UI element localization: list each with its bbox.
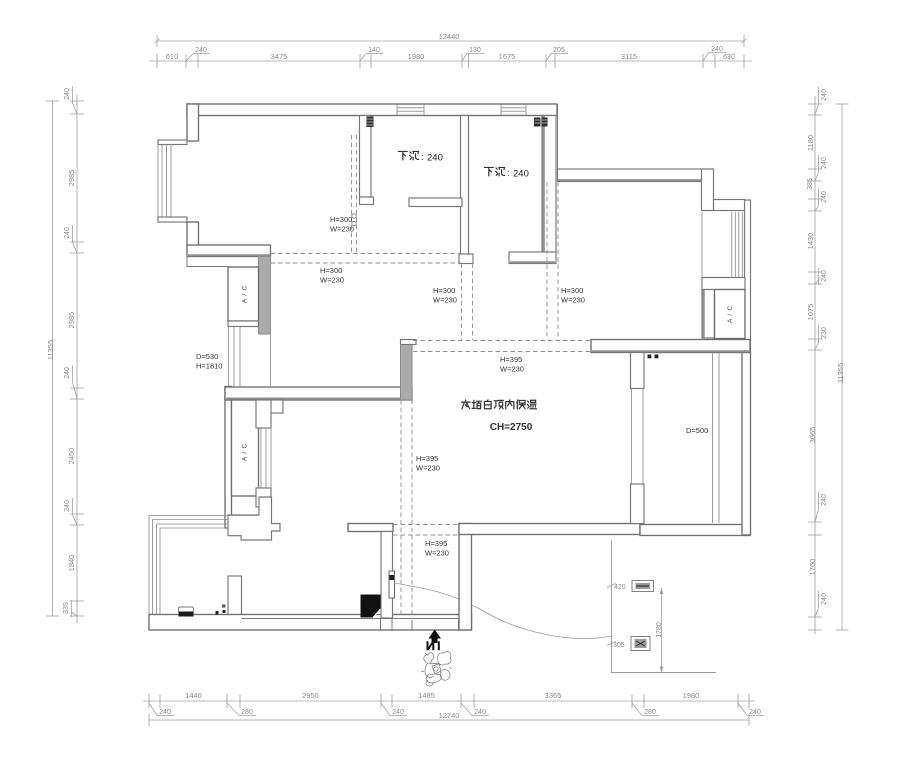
svg-text:240: 240 xyxy=(821,270,828,282)
svg-text:H=1810: H=1810 xyxy=(196,362,222,371)
svg-text::: : xyxy=(507,168,510,178)
svg-text:240: 240 xyxy=(64,500,71,512)
svg-text:11355: 11355 xyxy=(46,340,55,360)
svg-text:240: 240 xyxy=(427,153,443,164)
svg-text:240: 240 xyxy=(195,47,207,54)
svg-text:H=395: H=395 xyxy=(425,539,447,548)
svg-text:420: 420 xyxy=(614,584,626,591)
svg-text:240: 240 xyxy=(64,88,71,100)
svg-text:2985: 2985 xyxy=(67,170,76,187)
svg-text:1760: 1760 xyxy=(808,559,817,576)
svg-text:H=300: H=300 xyxy=(320,266,342,275)
svg-text:3115: 3115 xyxy=(621,52,637,61)
svg-text:A / C: A / C xyxy=(242,443,249,461)
svg-text:D=500: D=500 xyxy=(686,426,708,435)
svg-text:3665: 3665 xyxy=(808,427,817,444)
svg-text:1430: 1430 xyxy=(806,233,815,250)
svg-text:W=230: W=230 xyxy=(416,464,440,473)
svg-text:240: 240 xyxy=(821,157,828,169)
svg-text:A / C: A / C xyxy=(242,285,249,303)
svg-text:1980: 1980 xyxy=(408,52,425,61)
svg-text:240: 240 xyxy=(821,494,828,506)
svg-text:240: 240 xyxy=(392,709,404,716)
svg-text:3475: 3475 xyxy=(271,52,288,61)
svg-text:W=230: W=230 xyxy=(330,225,354,234)
svg-text:205: 205 xyxy=(553,47,565,54)
svg-text:W=230: W=230 xyxy=(320,276,344,285)
svg-text:W=230: W=230 xyxy=(561,296,585,305)
svg-text:A / C: A / C xyxy=(727,305,734,323)
svg-text:W=230: W=230 xyxy=(425,549,449,558)
svg-text:230: 230 xyxy=(821,327,828,339)
svg-text:2985: 2985 xyxy=(67,312,76,329)
svg-text:305: 305 xyxy=(613,642,625,649)
svg-text:240: 240 xyxy=(821,191,828,203)
svg-text:H=395: H=395 xyxy=(500,355,522,364)
svg-text:2950: 2950 xyxy=(302,691,319,700)
svg-text:1840: 1840 xyxy=(67,555,76,572)
svg-text:630: 630 xyxy=(723,54,735,61)
svg-text:H=300: H=300 xyxy=(433,286,455,295)
svg-text:1180: 1180 xyxy=(806,135,815,151)
svg-text:D=530: D=530 xyxy=(196,352,218,361)
svg-text:W=230: W=230 xyxy=(500,365,524,374)
svg-text:280: 280 xyxy=(644,709,656,716)
svg-text:12740: 12740 xyxy=(439,711,460,720)
svg-text:240: 240 xyxy=(64,367,71,379)
svg-text:H=300: H=300 xyxy=(561,286,583,295)
svg-text:11355: 11355 xyxy=(836,363,845,383)
svg-text:1980: 1980 xyxy=(683,691,700,700)
svg-text:1075: 1075 xyxy=(806,304,815,321)
svg-text:610: 610 xyxy=(166,52,179,61)
svg-text:280: 280 xyxy=(241,709,253,716)
svg-text:140: 140 xyxy=(368,47,380,54)
svg-text:CH=2750: CH=2750 xyxy=(490,422,533,433)
svg-text:1780: 1780 xyxy=(656,622,663,638)
svg-text:240: 240 xyxy=(159,709,171,716)
svg-text:240: 240 xyxy=(749,709,761,716)
svg-text:240: 240 xyxy=(821,89,828,101)
svg-text:H=300: H=300 xyxy=(330,215,352,224)
svg-text:1440: 1440 xyxy=(185,691,202,700)
svg-text:335: 335 xyxy=(63,602,70,614)
svg-text:1675: 1675 xyxy=(499,52,516,61)
svg-text:130: 130 xyxy=(469,47,481,54)
svg-text:240: 240 xyxy=(513,169,529,180)
svg-text:240: 240 xyxy=(474,709,486,716)
svg-text:3365: 3365 xyxy=(545,691,562,700)
svg-text:1485: 1485 xyxy=(418,691,435,700)
svg-text:W=230: W=230 xyxy=(433,296,457,305)
svg-text:2450: 2450 xyxy=(67,448,76,465)
svg-text:385: 385 xyxy=(807,178,814,190)
svg-text:240: 240 xyxy=(821,593,828,605)
svg-text:12440: 12440 xyxy=(439,32,460,41)
svg-text:240: 240 xyxy=(711,46,723,53)
svg-text:240: 240 xyxy=(64,227,71,239)
svg-text:H=395: H=395 xyxy=(416,454,438,463)
svg-text::: : xyxy=(421,152,424,162)
